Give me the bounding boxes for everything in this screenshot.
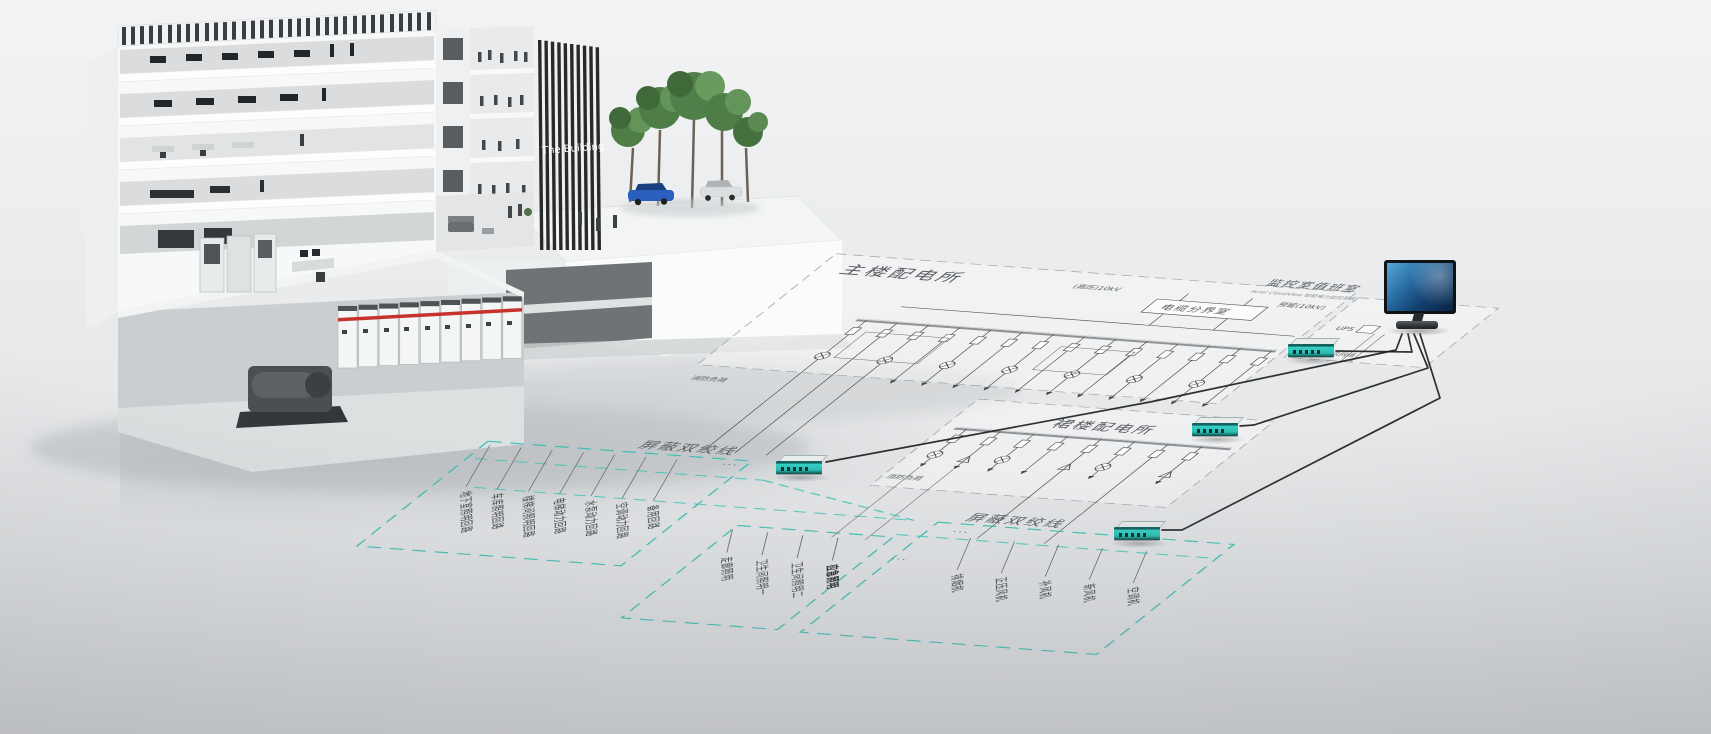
data-gateway-device-4: [1114, 521, 1162, 543]
atrium: [470, 26, 534, 248]
circuit-label: 排烟机: [948, 573, 965, 594]
cable-room-label: 电缆分界室: [1157, 303, 1235, 316]
gateway-front-panel: [776, 461, 822, 474]
tower-cutaway: [86, 10, 470, 330]
plant-floor: [120, 212, 434, 254]
main-substation-region: 主楼配电所 电缆分界室 (高压)10kV 预留(10kV): [600, 254, 1357, 482]
circuit-label: 应急照明: [824, 563, 841, 590]
circuit-label: 水泵动力回路: [582, 499, 599, 538]
ellipsis: ···: [886, 554, 912, 563]
gateway-front-panel: [1192, 423, 1238, 436]
circuit-label: 卫生间照明一: [753, 558, 770, 597]
circuit-label: 楼梯间照明回路: [520, 494, 538, 539]
gateway-front-panel: [1114, 527, 1160, 540]
circuit-label: 走廊照明: [718, 555, 735, 582]
circuit-label: 空调动力回路: [613, 501, 630, 540]
zone-b-feeders: [706, 530, 859, 561]
building-cutaway-render: The Building: [0, 0, 1100, 520]
generator: [236, 366, 348, 428]
circuit-label: 卫生间照明二: [788, 561, 805, 600]
switchgear-red-stripe: [338, 308, 522, 322]
podium-substation-title: 裙楼配电所: [1047, 418, 1161, 437]
gateway-ports: [1197, 429, 1227, 433]
main-substation-title: 主楼配电所: [834, 263, 971, 285]
podium-block: [448, 196, 852, 362]
office-floor: [118, 168, 436, 214]
zone-a-feeders: [440, 445, 702, 501]
stp-zone-b: 走廊照明 卫生间照明一 卫生间照明二 应急照明: [622, 459, 985, 630]
vignette-overlay: [0, 0, 1711, 734]
monitoring-computer: [1384, 260, 1458, 340]
circuit-label: 备用回路: [644, 504, 661, 531]
gateway-top-face: [1194, 417, 1244, 424]
podium-people: [578, 212, 617, 231]
main-feeders: [697, 320, 1276, 481]
lobby: [436, 192, 534, 252]
network-cables: [0, 0, 1711, 734]
reserve-incoming-label: 预留(10kV): [1275, 301, 1329, 310]
blue-car: [628, 183, 674, 205]
podium-fire-load-label: 消防负荷: [884, 473, 926, 481]
circuit-label: 空调机: [1124, 586, 1141, 607]
gateway-top-face: [778, 455, 828, 462]
circuit-label: 补风机: [1036, 579, 1053, 600]
white-car: [700, 180, 742, 201]
gateway-ports: [781, 467, 811, 471]
stp-zone-c: 屏蔽双绞线 ··· ··· 排烟机 正压风机 补风机 新风机 空调机: [799, 510, 1249, 655]
people-silhouettes: [478, 50, 528, 195]
building-sign: The Building: [541, 141, 605, 156]
monitoring-room-title: 监控室值班室: [1262, 278, 1365, 294]
basement-cutaway: [118, 234, 524, 472]
stp2-title: 屏蔽双绞线: [962, 512, 1072, 530]
podium-feeders: [836, 429, 1207, 547]
stp-zone-a: 屏蔽双绞线 ··· 地下室照明回路 车库照明回路 楼梯间照明回路 电梯动力回路 …: [357, 428, 768, 566]
podium-substation-region: 裙楼配电所 消防负荷: [819, 399, 1275, 549]
office-floor: [118, 80, 436, 126]
office-floor: [118, 124, 436, 170]
gateway-top-face: [1290, 338, 1340, 345]
ellipsis: ···: [717, 460, 743, 469]
network-label: TCP/IP通讯网络: [1294, 348, 1359, 358]
ups-label: UPS: [1333, 325, 1358, 332]
data-gateway-device-3: [776, 455, 824, 477]
hv-incoming-label: (高压)10kV: [1070, 283, 1124, 292]
one-line-diagram-plane: 主楼配电所 电缆分界室 (高压)10kV 预留(10kV): [77, 206, 1612, 680]
roof-louvers: [122, 12, 431, 45]
gateway-ports: [1293, 350, 1323, 354]
gateway-ports: [1119, 533, 1149, 537]
cars: [628, 180, 742, 205]
monitoring-room-subtitle: Acrel CloudView 智能电力监控系统: [1248, 289, 1358, 301]
gateway-front-panel: [1288, 344, 1334, 357]
shielded-twisted-pair-buses: [424, 459, 1259, 558]
ellipsis: ···: [948, 527, 974, 536]
data-gateway-device-1: [1288, 338, 1336, 360]
circuit-label: 地下室照明回路: [457, 490, 475, 535]
office-floor: [118, 36, 436, 82]
circuit-label: 正压风机: [992, 576, 1009, 603]
solution-illustration: The Building: [0, 0, 1711, 734]
building-floor-shadow: [120, 380, 980, 530]
fin-wall: The Building: [538, 40, 605, 250]
circuit-label: 电梯动力回路: [551, 497, 568, 536]
monitor-screen: [1384, 260, 1456, 314]
electrical-room: [200, 234, 334, 292]
monitor-stand: [1412, 313, 1424, 322]
switchgear-row: [338, 296, 522, 368]
ground-shadows: [30, 358, 1020, 492]
main-fire-load-label: 消防负荷: [688, 375, 730, 383]
monitoring-room-region: 监控室值班室 Acrel CloudView 智能电力监控系统 UPS TCP/…: [1179, 278, 1514, 368]
stair-doors: [443, 38, 463, 236]
rooftop-trees: [609, 71, 768, 217]
zone-c-feeders: [933, 538, 1170, 583]
cable-demarcation-room: 电缆分界室 (高压)10kV 预留(10kV): [1036, 283, 1333, 336]
monitor-base: [1396, 321, 1438, 329]
circuit-label: 车库照明回路: [488, 492, 505, 531]
circuit-label: 新风机: [1080, 582, 1097, 603]
stp1-title: 屏蔽双绞线: [634, 439, 744, 457]
data-gateway-device-2: [1192, 417, 1240, 439]
gateway-top-face: [1116, 521, 1166, 528]
